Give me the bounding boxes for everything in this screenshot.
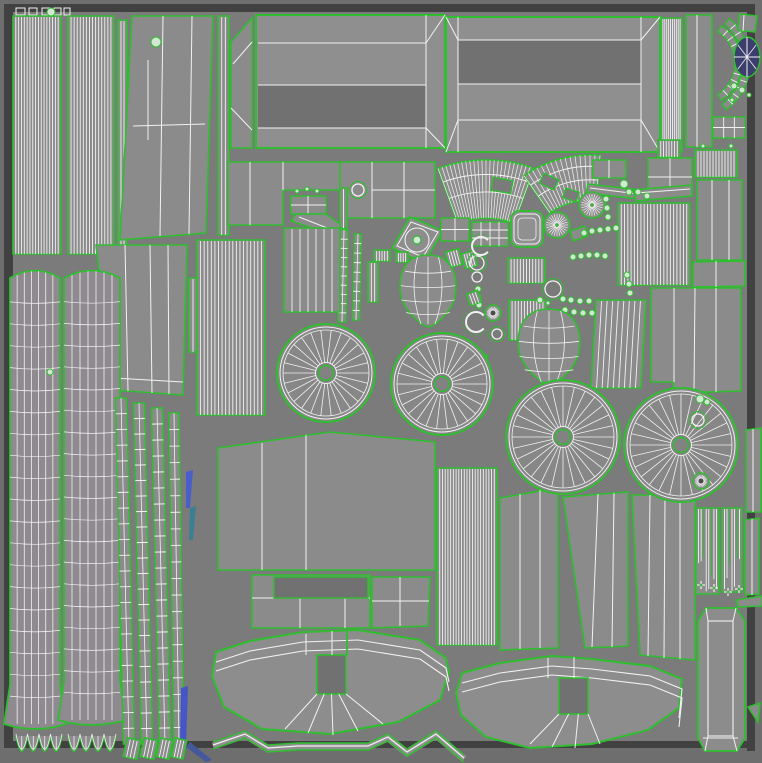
uv-island-stripes[interactable]	[368, 262, 378, 302]
uv-island-poly[interactable]	[218, 432, 435, 570]
uv-island-sunburst[interactable]	[693, 473, 709, 489]
uv-island-stripes[interactable]	[197, 240, 265, 415]
uv-island-stripes[interactable]	[156, 738, 173, 759]
uv-island-poly[interactable]	[697, 180, 742, 260]
uv-island-stripes[interactable]	[396, 252, 408, 262]
uv-island-wheel[interactable]	[277, 324, 375, 422]
uv-border-right	[747, 4, 755, 751]
uv-island-poly[interactable]	[651, 288, 741, 393]
uv-island-stripes[interactable]	[437, 468, 497, 645]
uv-island-roundsq[interactable]	[511, 211, 543, 247]
uv-island-cyl[interactable]	[58, 271, 126, 726]
uv-island-poly[interactable]	[120, 16, 213, 240]
uv-island-cyl[interactable]	[4, 271, 66, 730]
uv-island-stripes[interactable]	[695, 150, 737, 177]
uv-editor-viewport[interactable]	[0, 0, 762, 763]
uv-island-stripes[interactable]	[661, 18, 682, 152]
uv-island-poly[interactable]	[686, 15, 712, 147]
uv-island-panel[interactable]	[256, 15, 445, 148]
uv-island-stripes[interactable]	[140, 738, 158, 759]
uv-canvas[interactable]	[0, 0, 762, 763]
uv-island-wheel[interactable]	[506, 380, 620, 494]
uv-island-poly[interactable]	[746, 428, 761, 512]
uv-island-darkfan[interactable]	[734, 37, 760, 77]
uv-island-poly[interactable]	[291, 196, 326, 214]
uv-island-stripes[interactable]	[696, 508, 719, 594]
uv-island-poly[interactable]	[738, 14, 757, 32]
uv-island-panel[interactable]	[446, 17, 660, 152]
uv-island-stripes[interactable]	[508, 258, 545, 283]
uv-island-grid[interactable]	[713, 117, 745, 138]
uv-island-stripes[interactable]	[722, 508, 742, 592]
uv-island-stripes[interactable]	[13, 16, 61, 254]
uv-island-grid[interactable]	[441, 218, 469, 241]
uv-island-stripes[interactable]	[374, 250, 390, 261]
uv-island-grid[interactable]	[472, 222, 508, 246]
uv-island-poly[interactable]	[593, 160, 626, 178]
uv-island-sunburst[interactable]	[544, 212, 570, 238]
uv-island-poly[interactable]	[231, 18, 252, 148]
uv-island-sunburst[interactable]	[485, 305, 501, 321]
uv-island-stripes[interactable]	[340, 188, 347, 228]
uv-island-poly[interactable]	[745, 518, 759, 595]
uv-island-poly[interactable]	[500, 488, 558, 650]
uv-island-poly[interactable]	[693, 261, 745, 287]
uv-island-stripes[interactable]	[284, 228, 340, 312]
uv-island-ladder[interactable]	[353, 234, 362, 320]
uv-island-stripes[interactable]	[123, 738, 141, 759]
uv-island-col3d[interactable]	[698, 608, 745, 751]
uv-island-stripes[interactable]	[658, 140, 680, 157]
uv-island-poly[interactable]	[372, 577, 430, 628]
uv-island-stripes[interactable]	[68, 16, 114, 254]
uv-island-wheel[interactable]	[624, 388, 738, 502]
uv-island-poly[interactable]	[252, 575, 370, 628]
uv-island-poly[interactable]	[632, 495, 695, 660]
uv-island-sunburst[interactable]	[579, 192, 605, 218]
uv-island-stripes[interactable]	[189, 278, 197, 352]
uv-island-wheel[interactable]	[391, 333, 493, 435]
uv-border-top	[4, 4, 752, 12]
uv-island-stripes[interactable]	[591, 300, 646, 388]
